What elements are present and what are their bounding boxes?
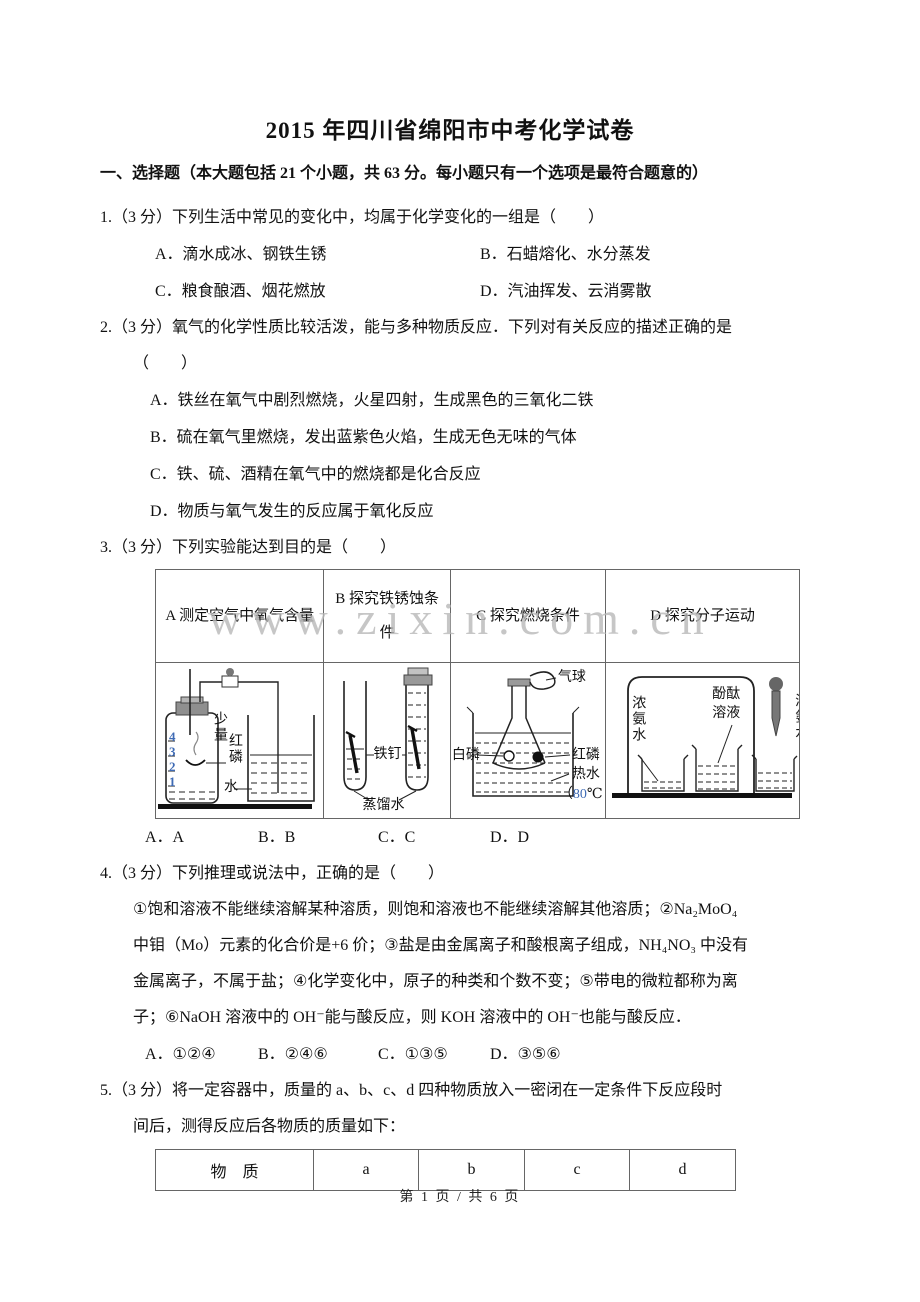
q4-option-c: C．①③⑤	[378, 1036, 448, 1073]
q4-number: 4.（3 分）	[100, 865, 172, 882]
q4-option-b: B．②④⑥	[258, 1036, 328, 1073]
q5-text: 将一定容器中，质量的 a、b、c、d 四种物质放入一密闭在一定条件下反应段时	[172, 1082, 722, 1099]
exam-page: 2015 年四川省绵阳市中考化学试卷 一、选择题（本大题包括 21 个小题，共 …	[0, 0, 920, 1302]
q2-option-b: B．硫在氧气里燃烧，发出蓝紫色火焰，生成无色无味的气体	[100, 419, 800, 456]
exam-content: 2015 年四川省绵阳市中考化学试卷 一、选择题（本大题包括 21 个小题，共 …	[100, 112, 800, 1191]
page-footer: 第 1 页 / 共 6 页	[0, 1186, 920, 1206]
q3-cell-c: 气球 白磷 红磷 热水 （80℃	[450, 663, 605, 819]
diagram-combustion: 气球 白磷 红磷 热水 （80℃	[451, 663, 605, 818]
q4-body-line4: 子；⑥NaOH 溶液中的 OH⁻能与酸反应，则 KOH 溶液中的 OH⁻也能与酸…	[100, 1000, 800, 1036]
q5-header-substance: 物 质	[156, 1150, 314, 1191]
q2-stem: 2.（3 分）氧气的化学性质比较活泼，能与多种物质反应．下列对有关反应的描述正确…	[100, 310, 800, 346]
q3-option-b: B．B	[258, 819, 295, 856]
label-temperature: （80℃	[559, 787, 603, 802]
q1-number: 1.（3 分）	[100, 209, 172, 226]
label-shaoliang: 少量	[212, 711, 227, 743]
label-ammonia: 浓氨水	[630, 695, 645, 743]
q2-stem-cont: （ ）	[100, 346, 800, 382]
q5-stem-cont: 间后，测得反应后各物质的质量如下：	[100, 1109, 800, 1145]
q3-header-a: A 测定空气中氧气含量	[156, 570, 324, 663]
q5-header-c: c	[525, 1150, 630, 1191]
q3-option-a: A．A	[145, 819, 184, 856]
q5-header-a: a	[314, 1150, 419, 1191]
q1-options-row1: A．滴水成冰、钢铁生锈 B．石蜡熔化、水分蒸发	[100, 236, 800, 273]
q4-body-line2: 中钼（Mo）元素的化合价是+6 价；③盐是由金属离子和酸根离子组成，NH₄NO₃…	[100, 928, 800, 964]
q3-experiment-table: A 测定空气中氧气含量 B 探究铁锈蚀条件 C 探究燃烧条件 D 探究分子运动	[155, 569, 800, 819]
q3-stem: 3.（3 分）下列实验能达到目的是（ ）	[100, 530, 800, 566]
temp-value: 80	[573, 787, 587, 802]
q5-table-header-row: 物 质 a b c d	[156, 1150, 736, 1191]
q4-text: 下列推理或说法中，正确的是（ ）	[172, 865, 444, 882]
diagram-oxygen-measure: 4 3 2 1 少量 红磷 水	[156, 663, 323, 818]
q3-text: 下列实验能达到目的是（ ）	[172, 539, 396, 556]
q3-number: 3.（3 分）	[100, 539, 172, 556]
q3-options-row: A．A B．B C．C D．D	[100, 819, 800, 856]
label-red-phosphorus-a: 红磷	[227, 733, 242, 765]
q4-option-a: A．①②④	[145, 1036, 216, 1073]
label-water-a: 水	[224, 780, 238, 795]
label-distilled-water: 蒸馏水	[362, 798, 404, 813]
q3-cell-a: 4 3 2 1 少量 红磷 水	[156, 663, 324, 819]
diagram-iron-rust: 铁钉 蒸馏水	[324, 663, 449, 818]
q1-options-row2: C．粮食酿酒、烟花燃放 D．汽油挥发、云消雾散	[100, 273, 800, 310]
label-edge-cut: 浓氨水	[793, 693, 799, 741]
label-iron-nail: 铁钉	[373, 747, 401, 762]
bottle-scale-numbers: 4 3 2 1	[169, 729, 176, 789]
section-heading: 一、选择题（本大题包括 21 个小题，共 63 分。每小题只有一个选项是最符合题…	[100, 160, 800, 188]
q4-body-line3: 金属离子，不属于盐；④化学变化中，原子的种类和个数不变；⑤带电的微粒都称为离	[100, 964, 800, 1000]
q1-option-d: D．汽油挥发、云消雾散	[480, 273, 652, 310]
q4-body-line1: ①饱和溶液不能继续溶解某种溶质，则饱和溶液也不能继续溶解其他溶质；②Na₂MoO…	[100, 892, 800, 928]
q2-number: 2.（3 分）	[100, 319, 172, 336]
q2-option-a: A．铁丝在氧气中剧烈燃烧，火星四射，生成黑色的三氧化二铁	[100, 382, 800, 419]
page-title: 2015 年四川省绵阳市中考化学试卷	[100, 112, 800, 150]
label-hot-water: 热水	[572, 767, 600, 782]
iron-rust-drawing	[324, 663, 444, 818]
q1-option-b: B．石蜡熔化、水分蒸发	[480, 236, 651, 273]
q3-option-c: C．C	[378, 819, 415, 856]
temp-bracket: （	[559, 787, 573, 802]
temp-unit: ℃	[587, 787, 603, 802]
label-red-phosphorus-c: 红磷	[572, 748, 600, 763]
q3-header-d: D 探究分子运动	[606, 570, 800, 663]
q4-options-row: A．①②④ B．②④⑥ C．①③⑤ D．③⑤⑥	[100, 1036, 800, 1073]
q1-text: 下列生活中常见的变化中，均属于化学变化的一组是（ ）	[172, 209, 604, 226]
label-balloon: 气球	[558, 670, 586, 685]
q3-table-diagram-row: 4 3 2 1 少量 红磷 水	[156, 663, 800, 819]
q3-table-header-row: A 测定空气中氧气含量 B 探究铁锈蚀条件 C 探究燃烧条件 D 探究分子运动	[156, 570, 800, 663]
q5-stem: 5.（3 分）将一定容器中，质量的 a、b、c、d 四种物质放入一密闭在一定条件…	[100, 1073, 800, 1109]
q5-substance-table: 物 质 a b c d	[155, 1149, 736, 1191]
q3-cell-b: 铁钉 蒸馏水	[324, 663, 450, 819]
q3-cell-d: 浓氨水 酚酞 溶液 浓氨水	[606, 663, 800, 819]
q1-stem: 1.（3 分）下列生活中常见的变化中，均属于化学变化的一组是（ ）	[100, 200, 800, 236]
q2-option-c: C．铁、硫、酒精在氧气中的燃烧都是化合反应	[100, 456, 800, 493]
q3-header-c: C 探究燃烧条件	[450, 570, 605, 663]
diagram-molecular-motion: 浓氨水 酚酞 溶液 浓氨水	[606, 663, 799, 818]
label-phenolphthalein: 酚酞 溶液	[712, 685, 740, 723]
q2-option-d: D．物质与氧气发生的反应属于氧化反应	[100, 493, 800, 530]
q3-header-b: B 探究铁锈蚀条件	[324, 570, 450, 663]
q4-stem: 4.（3 分）下列推理或说法中，正确的是（ ）	[100, 856, 800, 892]
q5-header-d: d	[630, 1150, 736, 1191]
q2-text: 氧气的化学性质比较活泼，能与多种物质反应．下列对有关反应的描述正确的是	[172, 319, 732, 336]
q1-option-c: C．粮食酿酒、烟花燃放	[155, 273, 326, 310]
q5-header-b: b	[419, 1150, 525, 1191]
q1-option-a: A．滴水成冰、钢铁生锈	[155, 236, 327, 273]
q4-option-d: D．③⑤⑥	[490, 1036, 561, 1073]
q3-option-d: D．D	[490, 819, 529, 856]
q5-number: 5.（3 分）	[100, 1082, 172, 1099]
label-white-phosphorus: 白磷	[452, 748, 480, 763]
